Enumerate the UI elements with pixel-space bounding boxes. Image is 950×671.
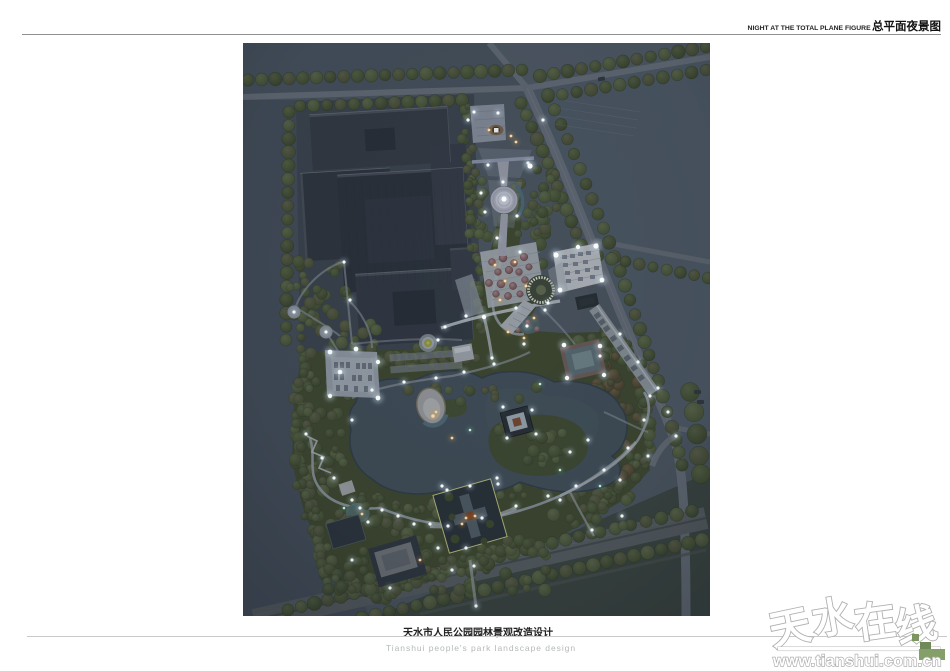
- svg-text:在: 在: [852, 596, 899, 647]
- svg-text:水: 水: [808, 592, 857, 645]
- svg-text:www.tianshui.com.cn: www.tianshui.com.cn: [772, 653, 942, 670]
- svg-text:线: 线: [891, 599, 941, 653]
